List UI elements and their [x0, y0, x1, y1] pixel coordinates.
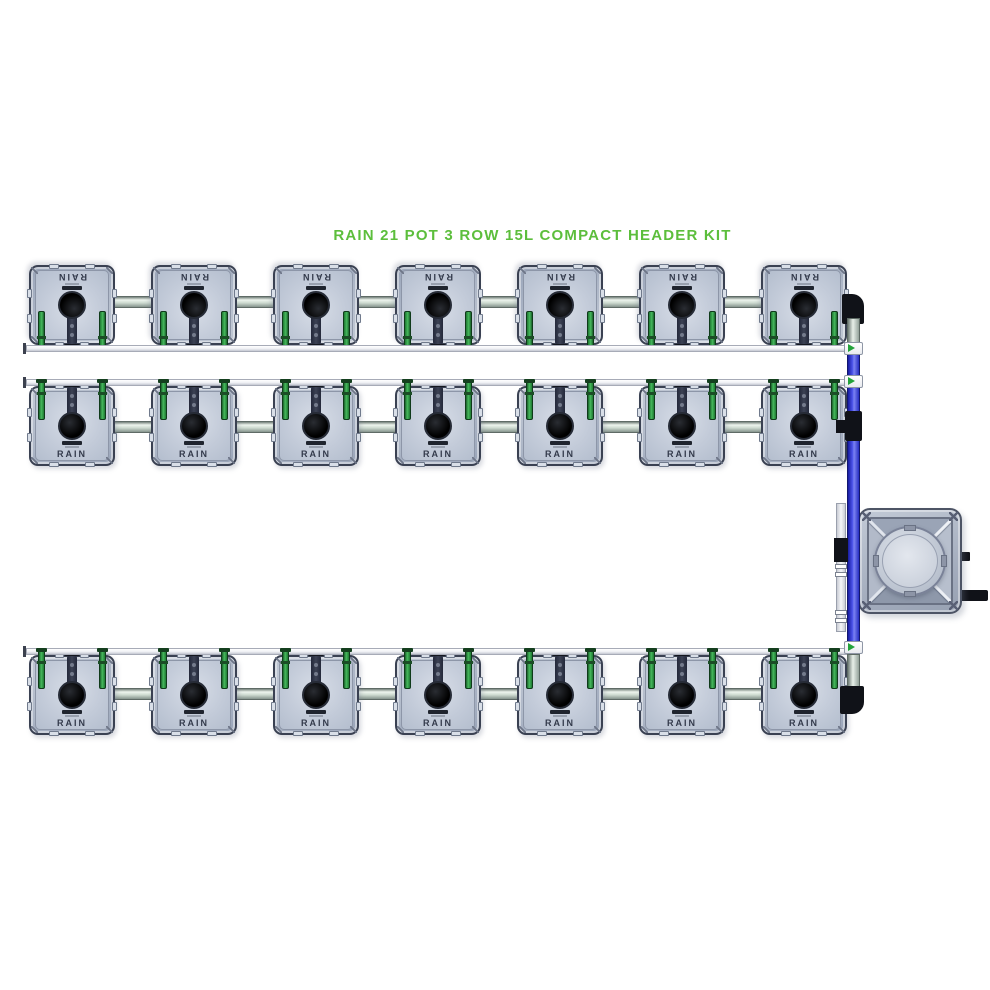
pot-clip — [27, 289, 32, 298]
pot-row3-7: RAIN — [761, 655, 847, 735]
tank-screw-icon — [862, 601, 871, 610]
pot-corner-screw — [594, 657, 601, 664]
grommet-left — [38, 648, 45, 689]
pot-clip — [393, 433, 398, 442]
label-bar-small — [675, 446, 689, 448]
pot-clip — [637, 677, 642, 686]
drip-stem — [189, 656, 199, 684]
pot-corner-screw — [350, 388, 357, 395]
drain-hole — [424, 681, 452, 709]
return-pipe-row-3 — [26, 648, 853, 655]
pot-clip — [171, 462, 181, 467]
pot-clip — [759, 289, 764, 298]
flow-arrow-icon — [848, 643, 855, 651]
drain-hole — [668, 412, 696, 440]
pot-row1-7: RAIN — [761, 265, 847, 345]
pot-clip — [112, 433, 117, 442]
pot-clip — [393, 702, 398, 711]
pot-clip — [515, 289, 520, 298]
pot-row2-1: RAIN — [29, 386, 115, 466]
label-bar-small — [309, 715, 323, 717]
pot-row2-5: RAIN — [517, 386, 603, 466]
label-bar — [428, 286, 448, 290]
grommet-left — [282, 379, 289, 420]
drain-hole — [58, 412, 86, 440]
pot-clip — [271, 408, 276, 417]
drain-hole — [424, 291, 452, 319]
drain-hole — [546, 291, 574, 319]
pot-row3-3: RAIN — [273, 655, 359, 735]
pot-clip — [659, 731, 669, 736]
drip-stem — [433, 316, 443, 344]
label-bar-small — [187, 283, 201, 285]
pot-label: RAIN — [29, 449, 115, 459]
pot-clip — [415, 731, 425, 736]
kit-title: RAIN 21 POT 3 ROW 15L COMPACT HEADER KIT — [0, 227, 990, 244]
pot-corner-screw — [106, 388, 113, 395]
pot-clip — [722, 314, 727, 323]
pot-clip — [49, 264, 59, 269]
drip-stem — [311, 387, 321, 415]
label-bar-small — [187, 446, 201, 448]
pot-clip — [234, 289, 239, 298]
grommet-right — [99, 648, 106, 689]
label-bar-small — [431, 283, 445, 285]
pot-corner-screw — [350, 336, 357, 343]
grommet-left — [770, 648, 777, 689]
pot-clip — [537, 462, 547, 467]
label-bar — [62, 441, 82, 445]
drain-hole — [302, 412, 330, 440]
pot-clip — [451, 731, 461, 736]
label-bar-small — [553, 715, 567, 717]
bypass-fitting-black — [834, 538, 848, 562]
pot-label: RAIN — [761, 449, 847, 459]
pot-corner-screw — [838, 388, 845, 395]
pot-clip — [149, 677, 154, 686]
pot-clip — [695, 462, 705, 467]
pot-row3-1: RAIN — [29, 655, 115, 735]
bypass-ring — [835, 610, 847, 615]
pot-clip — [817, 731, 827, 736]
drip-stem — [433, 387, 443, 415]
pot-label: RAIN — [151, 449, 237, 459]
drip-stem — [311, 316, 321, 344]
pot-row2-7: RAIN — [761, 386, 847, 466]
pot-clip — [112, 677, 117, 686]
label-bar-small — [187, 715, 201, 717]
pot-clip — [659, 462, 669, 467]
pot-clip — [515, 408, 520, 417]
drip-stem — [799, 387, 809, 415]
system-diagram: RAIN 21 POT 3 ROW 15L COMPACT HEADER KIT — [0, 0, 990, 990]
label-bar-small — [675, 283, 689, 285]
label-bar — [184, 286, 204, 290]
label-bar — [794, 441, 814, 445]
pot-clip — [393, 677, 398, 686]
pot-clip — [149, 408, 154, 417]
pot-clip — [600, 289, 605, 298]
pot-clip — [637, 408, 642, 417]
drip-stem — [555, 656, 565, 684]
pot-clip — [600, 408, 605, 417]
drip-stem — [311, 656, 321, 684]
pot-clip — [356, 289, 361, 298]
grommet-left — [770, 379, 777, 420]
pot-clip — [234, 408, 239, 417]
pot-clip — [393, 314, 398, 323]
pot-clip — [781, 264, 791, 269]
return-pipe-endcap-row-2 — [23, 377, 26, 388]
pot-clip — [478, 433, 483, 442]
grommet-left — [160, 379, 167, 420]
pot-clip — [171, 264, 181, 269]
pot-clip — [207, 264, 217, 269]
pot-label: RAIN — [639, 449, 725, 459]
drain-hole — [790, 291, 818, 319]
pot-clip — [393, 289, 398, 298]
pot-clip — [478, 314, 483, 323]
return-pipe-row-1 — [26, 345, 853, 352]
pot-corner-screw — [106, 336, 113, 343]
pot-clip — [515, 433, 520, 442]
pot-label: RAIN — [29, 272, 115, 282]
pot-clip — [478, 677, 483, 686]
tank-screw-icon — [862, 512, 871, 521]
flow-arrow-icon — [848, 344, 855, 352]
pot-clip — [234, 702, 239, 711]
drip-stem — [555, 387, 565, 415]
label-bar-small — [431, 446, 445, 448]
pot-clip — [27, 702, 32, 711]
pot-clip — [49, 731, 59, 736]
drain-hole — [790, 412, 818, 440]
pot-clip — [271, 289, 276, 298]
drip-stem — [189, 316, 199, 344]
pot-clip — [393, 408, 398, 417]
grommet-left — [404, 648, 411, 689]
pot-corner-screw — [472, 657, 479, 664]
pot-clip — [293, 264, 303, 269]
pot-clip — [722, 289, 727, 298]
pot-clip — [722, 408, 727, 417]
drain-hole — [180, 681, 208, 709]
pot-row3-5: RAIN — [517, 655, 603, 735]
pot-label: RAIN — [151, 272, 237, 282]
pot-corner-screw — [716, 388, 723, 395]
pot-clip — [112, 702, 117, 711]
pot-clip — [451, 264, 461, 269]
pot-label: RAIN — [639, 272, 725, 282]
pot-clip — [415, 462, 425, 467]
pot-clip — [49, 462, 59, 467]
pot-row2-2: RAIN — [151, 386, 237, 466]
pot-clip — [234, 677, 239, 686]
label-bar-small — [65, 446, 79, 448]
pot-clip — [27, 677, 32, 686]
pot-clip — [329, 731, 339, 736]
pot-label: RAIN — [151, 718, 237, 728]
drip-stem — [67, 387, 77, 415]
return-pipe-row-2 — [26, 379, 853, 386]
pot-clip — [573, 462, 583, 467]
pot-clip — [234, 314, 239, 323]
pot-clip — [637, 433, 642, 442]
pot-clip — [112, 408, 117, 417]
pot-corner-screw — [716, 336, 723, 343]
pot-clip — [85, 462, 95, 467]
drip-stem — [677, 656, 687, 684]
pot-clip — [515, 314, 520, 323]
lid-notch — [873, 555, 879, 567]
grommet-right — [587, 379, 594, 420]
pot-row1-6: RAIN — [639, 265, 725, 345]
pot-clip — [637, 289, 642, 298]
pot-clip — [329, 462, 339, 467]
pot-clip — [293, 731, 303, 736]
pot-corner-screw — [228, 657, 235, 664]
pot-clip — [695, 731, 705, 736]
pot-clip — [27, 314, 32, 323]
drain-hole — [668, 681, 696, 709]
pot-clip — [149, 289, 154, 298]
bypass-ring — [835, 618, 847, 623]
drip-stem — [189, 387, 199, 415]
lid-notch — [941, 555, 947, 567]
label-bar-small — [797, 715, 811, 717]
tank-lid-inner — [882, 534, 938, 588]
grommet-right — [221, 379, 228, 420]
grommet-left — [160, 648, 167, 689]
label-bar-small — [553, 446, 567, 448]
grommet-right — [831, 379, 838, 420]
grommet-left — [648, 648, 655, 689]
pot-corner-screw — [594, 336, 601, 343]
pot-clip — [817, 462, 827, 467]
drip-stem — [799, 656, 809, 684]
pot-clip — [356, 314, 361, 323]
pot-clip — [149, 702, 154, 711]
label-bar — [550, 286, 570, 290]
label-bar — [184, 441, 204, 445]
pot-clip — [356, 433, 361, 442]
pot-row3-2: RAIN — [151, 655, 237, 735]
pot-clip — [722, 433, 727, 442]
label-bar — [550, 710, 570, 714]
pot-corner-screw — [228, 388, 235, 395]
label-bar — [794, 286, 814, 290]
label-bar — [306, 710, 326, 714]
grommet-right — [831, 648, 838, 689]
pot-clip — [112, 314, 117, 323]
pot-label: RAIN — [273, 272, 359, 282]
drip-stem — [799, 316, 809, 344]
pot-corner-screw — [106, 657, 113, 664]
flow-arrow-icon — [848, 377, 855, 385]
pot-row2-3: RAIN — [273, 386, 359, 466]
label-bar — [62, 710, 82, 714]
pot-corner-screw — [472, 336, 479, 343]
pot-clip — [271, 702, 276, 711]
bypass-ring — [835, 564, 847, 569]
pot-clip — [817, 264, 827, 269]
pot-row1-5: RAIN — [517, 265, 603, 345]
grommet-right — [343, 648, 350, 689]
grommet-right — [99, 379, 106, 420]
pot-corner-screw — [838, 657, 845, 664]
pot-clip — [356, 702, 361, 711]
drain-hole — [546, 681, 574, 709]
pot-clip — [149, 314, 154, 323]
grommet-left — [282, 648, 289, 689]
tank-screw-icon — [949, 512, 958, 521]
elbow-fitting-bottom — [840, 686, 864, 714]
grommet-left — [648, 379, 655, 420]
pot-clip — [171, 731, 181, 736]
drip-stem — [67, 656, 77, 684]
grommet-right — [465, 379, 472, 420]
pot-clip — [600, 314, 605, 323]
pot-clip — [27, 433, 32, 442]
pot-clip — [112, 289, 117, 298]
drip-stem — [67, 316, 77, 344]
pot-label: RAIN — [395, 449, 481, 459]
pot-row3-6: RAIN — [639, 655, 725, 735]
drip-stem — [677, 387, 687, 415]
pot-clip — [271, 677, 276, 686]
pot-label: RAIN — [517, 718, 603, 728]
pot-clip — [759, 702, 764, 711]
pot-clip — [85, 731, 95, 736]
drip-stem — [677, 316, 687, 344]
drain-hole — [302, 681, 330, 709]
lid-notch — [904, 525, 916, 531]
tank-screw-icon — [949, 601, 958, 610]
grommet-right — [465, 648, 472, 689]
pot-clip — [759, 433, 764, 442]
pot-row2-4: RAIN — [395, 386, 481, 466]
pot-clip — [600, 433, 605, 442]
label-bar-small — [65, 283, 79, 285]
grommet-left — [404, 379, 411, 420]
pot-clip — [329, 264, 339, 269]
drip-stem — [433, 656, 443, 684]
pot-corner-screw — [716, 657, 723, 664]
label-bar-small — [309, 446, 323, 448]
pot-corner-screw — [472, 388, 479, 395]
pot-clip — [271, 433, 276, 442]
label-bar — [550, 441, 570, 445]
tee-fitting-stub — [836, 420, 848, 433]
pot-clip — [234, 433, 239, 442]
pot-label: RAIN — [517, 449, 603, 459]
pot-row1-3: RAIN — [273, 265, 359, 345]
label-bar — [428, 441, 448, 445]
pot-clip — [149, 433, 154, 442]
pot-clip — [415, 264, 425, 269]
pot-label: RAIN — [395, 718, 481, 728]
pot-clip — [600, 702, 605, 711]
pot-corner-screw — [594, 388, 601, 395]
drain-hole — [790, 681, 818, 709]
pot-clip — [573, 264, 583, 269]
label-bar-small — [797, 446, 811, 448]
header-tank — [858, 508, 962, 614]
label-bar-small — [65, 715, 79, 717]
drain-hole — [668, 291, 696, 319]
pot-clip — [695, 264, 705, 269]
pot-row3-4: RAIN — [395, 655, 481, 735]
pot-corner-screw — [228, 336, 235, 343]
pot-label: RAIN — [761, 272, 847, 282]
label-bar-small — [553, 283, 567, 285]
grommet-right — [587, 648, 594, 689]
pot-label: RAIN — [639, 718, 725, 728]
pot-corner-screw — [350, 657, 357, 664]
pot-label: RAIN — [395, 272, 481, 282]
pot-clip — [781, 462, 791, 467]
return-pipe-endcap-row-3 — [23, 646, 26, 657]
grommet-left — [526, 648, 533, 689]
pot-label: RAIN — [517, 272, 603, 282]
label-bar-small — [309, 283, 323, 285]
lid-notch — [904, 591, 916, 597]
pot-clip — [573, 731, 583, 736]
pot-clip — [207, 731, 217, 736]
drain-hole — [302, 291, 330, 319]
manifold-pipe-blue — [847, 350, 860, 646]
label-bar — [184, 710, 204, 714]
bypass-ring — [835, 572, 847, 577]
pot-label: RAIN — [273, 718, 359, 728]
drain-hole — [180, 412, 208, 440]
pot-clip — [722, 702, 727, 711]
pot-clip — [356, 677, 361, 686]
pot-clip — [659, 264, 669, 269]
grommet-right — [709, 379, 716, 420]
pot-label: RAIN — [761, 718, 847, 728]
pot-row1-4: RAIN — [395, 265, 481, 345]
pot-clip — [637, 314, 642, 323]
grommet-right — [709, 648, 716, 689]
pot-clip — [271, 314, 276, 323]
pot-row1-1: RAIN — [29, 265, 115, 345]
grommet-right — [343, 379, 350, 420]
grommet-left — [526, 379, 533, 420]
pot-clip — [759, 314, 764, 323]
pot-clip — [537, 731, 547, 736]
drain-hole — [58, 681, 86, 709]
pot-clip — [722, 677, 727, 686]
grommet-left — [38, 379, 45, 420]
drip-stem — [555, 316, 565, 344]
return-pipe-endcap-row-1 — [23, 343, 26, 354]
pot-clip — [781, 731, 791, 736]
grommet-right — [221, 648, 228, 689]
label-bar — [672, 286, 692, 290]
drain-hole — [180, 291, 208, 319]
drain-hole — [546, 412, 574, 440]
label-bar — [794, 710, 814, 714]
pot-label: RAIN — [29, 718, 115, 728]
pot-clip — [478, 702, 483, 711]
pot-clip — [356, 408, 361, 417]
drain-hole — [424, 412, 452, 440]
pot-clip — [515, 677, 520, 686]
label-bar-small — [797, 283, 811, 285]
pot-clip — [759, 408, 764, 417]
drain-hole — [58, 291, 86, 319]
